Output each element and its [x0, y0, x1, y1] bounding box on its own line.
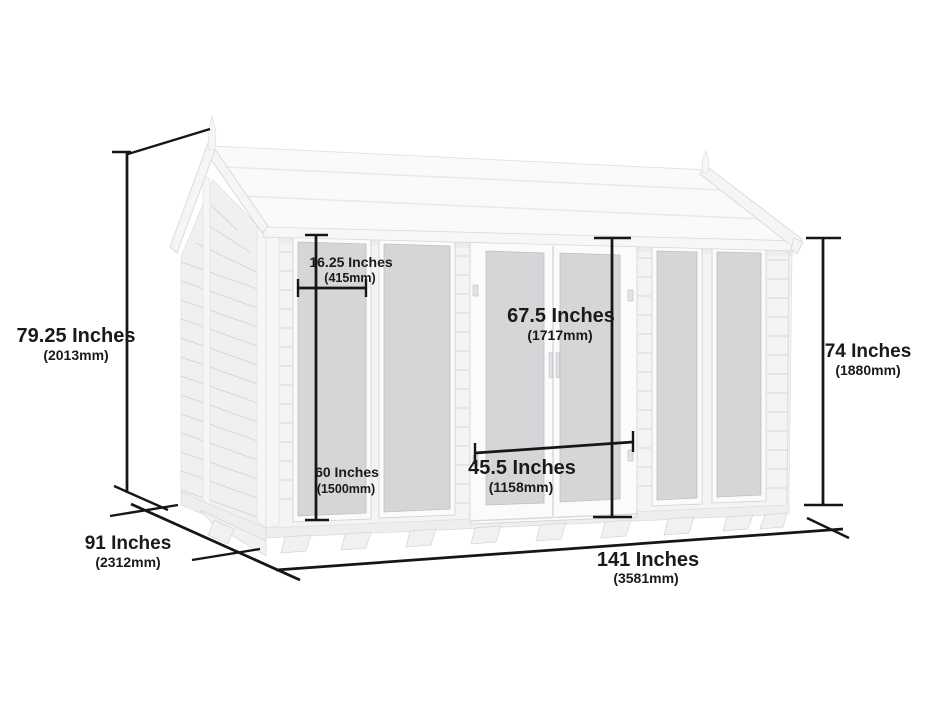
- skid-foot: [341, 532, 371, 550]
- gable-cover-strip: [203, 174, 210, 505]
- skid-foot: [281, 535, 311, 553]
- shed: [170, 116, 803, 556]
- label-height-right-inches: 74 Inches: [825, 341, 912, 362]
- skid-foot: [664, 517, 694, 535]
- label-window-height-mm: (1500mm): [317, 482, 375, 496]
- label-depth-inches: 91 Inches: [85, 533, 172, 554]
- label-depth-mm: (2312mm): [95, 554, 160, 570]
- dim-extension-line: [128, 129, 210, 154]
- label-window-width-mm: (415mm): [324, 271, 375, 285]
- window-pane: [657, 251, 697, 500]
- door-handle: [556, 352, 560, 378]
- door-hinge: [628, 290, 633, 301]
- skid-foot: [406, 529, 436, 547]
- finial-left: [208, 116, 216, 150]
- label-width-mm: (3581mm): [613, 570, 678, 586]
- label-width-inches: 141 Inches: [597, 549, 699, 571]
- skid-foot: [723, 515, 753, 531]
- label-door-width-inches: 45.5 Inches: [468, 457, 576, 479]
- label-height-right-mm: (1880mm): [835, 362, 900, 378]
- label-height-left-inches: 79.25 Inches: [17, 325, 136, 347]
- gable-corner-trim: [257, 227, 266, 528]
- roof-front-plane: [212, 146, 800, 241]
- diagram-svg: 79.25 Inches (2013mm) 91 Inches (2312mm)…: [0, 0, 940, 705]
- door-hinge: [473, 285, 478, 296]
- label-window-height-inches: 60 Inches: [315, 464, 379, 480]
- finial-right: [702, 151, 709, 173]
- dim-height-right: 74 Inches (1880mm): [804, 238, 911, 505]
- dim-tick: [114, 486, 168, 510]
- door-handle: [549, 352, 553, 378]
- label-door-height-mm: (1717mm): [527, 327, 592, 343]
- skid-foot: [601, 520, 631, 538]
- dim-tick: [110, 505, 178, 516]
- label-window-width-inches: 16.25 Inches: [309, 254, 392, 270]
- window-pane: [717, 252, 761, 497]
- label-door-height-inches: 67.5 Inches: [507, 305, 615, 327]
- label-height-left-mm: (2013mm): [43, 347, 108, 363]
- skid-foot: [536, 523, 566, 541]
- label-door-width-mm: (1158mm): [489, 479, 554, 495]
- window-pane: [384, 244, 450, 512]
- shed-dimension-diagram: 79.25 Inches (2013mm) 91 Inches (2312mm)…: [0, 0, 940, 705]
- front-corner-trim: [266, 234, 279, 528]
- skid-foot: [471, 526, 501, 544]
